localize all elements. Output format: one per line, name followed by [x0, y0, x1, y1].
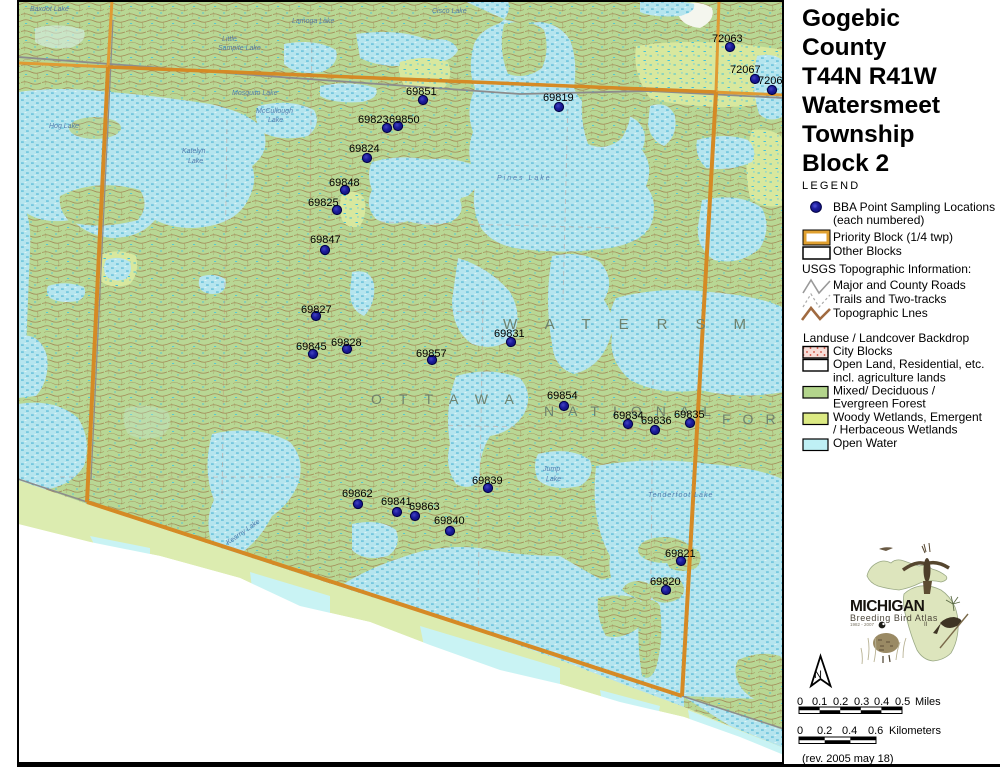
svg-text:69848: 69848: [329, 177, 360, 189]
svg-text:Pines Lake: Pines Lake: [497, 175, 552, 182]
svg-text:N: N: [814, 669, 822, 681]
svg-text:County: County: [802, 34, 887, 61]
svg-text:72067: 72067: [730, 64, 761, 76]
svg-text:0.1: 0.1: [812, 696, 827, 708]
svg-text:Mosquito Lake: Mosquito Lake: [232, 90, 278, 97]
svg-text:69836: 69836: [641, 415, 672, 427]
svg-text:McCullough: McCullough: [256, 108, 293, 115]
svg-text:69857: 69857: [416, 348, 447, 360]
svg-text:0.3: 0.3: [854, 696, 869, 708]
svg-text:Hog Lake: Hog Lake: [49, 123, 79, 130]
svg-text:0.6: 0.6: [868, 725, 883, 737]
svg-text:1982 - 2007: 1982 - 2007: [850, 622, 875, 627]
svg-text:Major and County Roads: Major and County Roads: [833, 278, 966, 292]
svg-text:Baxdot Lake: Baxdot Lake: [30, 6, 69, 13]
svg-text:Jump: Jump: [542, 466, 560, 473]
svg-text:Evergreen Forest: Evergreen Forest: [833, 397, 926, 411]
svg-text:Miles: Miles: [915, 696, 941, 708]
svg-text:69854: 69854: [547, 390, 578, 402]
svg-text:69845: 69845: [296, 341, 327, 353]
svg-text:Mixed/ Deciduous /: Mixed/ Deciduous /: [833, 384, 936, 398]
svg-text:Sampite Lake: Sampite Lake: [218, 45, 261, 52]
svg-text:Lamoga Lake: Lamoga Lake: [292, 18, 335, 25]
svg-text:USGS Topographic Information:: USGS Topographic Information:: [802, 262, 971, 276]
svg-text:T44N R41W: T44N R41W: [802, 63, 938, 90]
svg-text:/ Herbaceous Wetlands: / Herbaceous Wetlands: [833, 423, 958, 437]
svg-text:69862: 69862: [342, 488, 373, 500]
svg-text:Katelyn: Katelyn: [182, 148, 205, 155]
svg-text:Lake: Lake: [546, 476, 561, 483]
svg-text:69850: 69850: [389, 114, 420, 126]
svg-text:69821: 69821: [665, 548, 696, 560]
svg-text:Open Land, Residential, etc.: Open Land, Residential, etc.: [833, 357, 984, 371]
svg-text:Landuse / Landcover Backdrop: Landuse / Landcover Backdrop: [803, 331, 969, 345]
svg-text:LEGEND: LEGEND: [802, 180, 860, 192]
svg-text:69840: 69840: [434, 515, 465, 527]
svg-text:WATERSM: WATERSM: [503, 316, 774, 333]
svg-text:Tenderfoot Lake: Tenderfoot Lake: [648, 492, 713, 499]
svg-text:II: II: [924, 622, 928, 628]
svg-text:69834: 69834: [613, 410, 644, 422]
svg-text:Topographic Lnes: Topographic Lnes: [833, 306, 928, 320]
svg-text:0.4: 0.4: [842, 725, 857, 737]
svg-text:Trails and Two-tracks: Trails and Two-tracks: [833, 292, 946, 306]
svg-text:69863: 69863: [409, 501, 440, 513]
svg-text:Watersmeet: Watersmeet: [802, 92, 940, 119]
svg-text:69847: 69847: [310, 234, 341, 246]
svg-text:(each numbered): (each numbered): [833, 213, 924, 227]
svg-text:incl. agriculture lands: incl. agriculture lands: [833, 371, 946, 385]
svg-text:Priority Block (1/4 twp): Priority Block (1/4 twp): [833, 230, 953, 244]
svg-text:0.2: 0.2: [817, 725, 832, 737]
svg-text:69825: 69825: [308, 197, 339, 209]
svg-text:Township: Township: [802, 121, 915, 148]
svg-text:69841: 69841: [381, 496, 412, 508]
svg-text:0: 0: [797, 696, 803, 708]
svg-text:Kilometers: Kilometers: [889, 725, 941, 737]
svg-text:(rev. 2005 may 18): (rev. 2005 may 18): [802, 753, 894, 765]
svg-text:69835: 69835: [674, 409, 705, 421]
svg-text:69824: 69824: [349, 143, 380, 155]
svg-text:Gogebic: Gogebic: [802, 5, 900, 32]
svg-text:69823: 69823: [358, 114, 389, 126]
svg-text:0.2: 0.2: [833, 696, 848, 708]
svg-text:Little: Little: [222, 36, 237, 43]
svg-text:Lake: Lake: [188, 158, 203, 165]
svg-text:69831: 69831: [494, 328, 525, 340]
svg-text:69819: 69819: [543, 92, 574, 104]
svg-text:0.5: 0.5: [895, 696, 910, 708]
svg-text:City Blocks: City Blocks: [833, 344, 892, 358]
svg-text:72063: 72063: [712, 33, 743, 45]
svg-text:Block 2: Block 2: [802, 150, 889, 177]
svg-text:FOR: FOR: [722, 411, 788, 427]
svg-text:BBA Point Sampling Locations: BBA Point Sampling Locations: [833, 200, 995, 214]
svg-text:0.4: 0.4: [874, 696, 889, 708]
svg-text:69851: 69851: [406, 86, 437, 98]
svg-text:69839: 69839: [472, 475, 503, 487]
svg-text:0: 0: [797, 725, 803, 737]
svg-text:Lake: Lake: [268, 117, 283, 124]
svg-text:69820: 69820: [650, 576, 681, 588]
svg-text:Other Blocks: Other Blocks: [833, 244, 902, 258]
svg-text:Cisco Lake: Cisco Lake: [432, 8, 467, 15]
svg-text:Open Water: Open Water: [833, 436, 897, 450]
svg-text:69827: 69827: [301, 304, 332, 316]
svg-text:OTTAWA: OTTAWA: [371, 391, 531, 407]
svg-text:69828: 69828: [331, 337, 362, 349]
